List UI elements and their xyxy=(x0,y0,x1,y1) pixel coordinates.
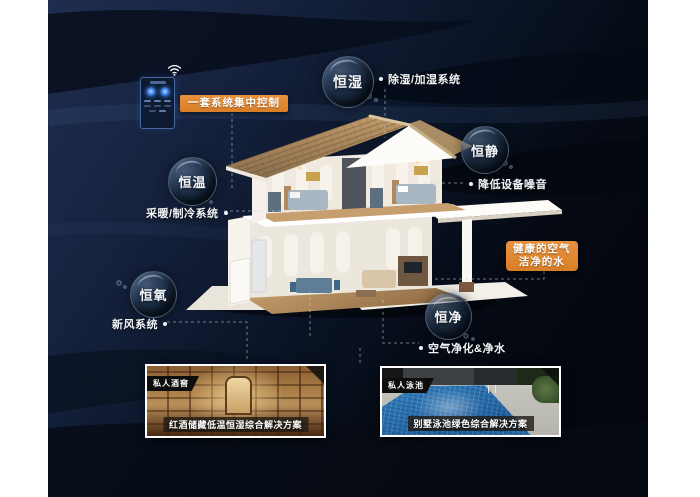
bullet-dot xyxy=(163,322,167,326)
wifi-icon xyxy=(167,63,182,76)
card-tag: 私人酒窖 xyxy=(147,376,199,391)
callout-dehumidify-system: 除湿/加湿系统 xyxy=(379,71,461,87)
bubble-label: 恒湿 xyxy=(333,72,363,92)
healthy-air-water-label: 健康的空气 洁净的水 xyxy=(506,241,578,271)
bubble-label: 恒净 xyxy=(434,307,462,326)
bubble-label: 恒氧 xyxy=(139,285,167,304)
callout-heating-cooling: 采暖/制冷系统 xyxy=(146,205,228,221)
bullet-dot xyxy=(379,77,383,81)
panel-title-bar xyxy=(150,81,166,84)
wine-cellar-card: 私人酒窖 红酒储藏低温恒湿综合解决方案 xyxy=(145,364,326,438)
pool-ladder xyxy=(488,385,496,393)
pool-card: 私人泳池 别墅泳池绿色综合解决方案 xyxy=(380,366,561,437)
callout-text: 除湿/加湿系统 xyxy=(388,71,461,87)
bullet-dot xyxy=(224,211,228,215)
central-control-label: 一套系统集中控制 xyxy=(180,95,288,112)
card-caption: 红酒储藏低温恒湿综合解决方案 xyxy=(163,417,308,432)
healthy-air-line: 健康的空气 xyxy=(513,243,571,256)
callout-text: 新风系统 xyxy=(112,316,158,332)
card-tag: 私人泳池 xyxy=(382,378,434,393)
card-caption: 别墅泳池绿色综合解决方案 xyxy=(407,416,533,431)
infographic-canvas: { "bubbles": [ {"id": "heng-shi", "label… xyxy=(0,0,700,497)
callout-text: 采暖/制冷系统 xyxy=(146,205,219,221)
clean-water-line: 洁净的水 xyxy=(513,256,571,269)
bubble-constant-oxygen: 恒氧 xyxy=(130,271,177,318)
bubble-label: 恒温 xyxy=(178,172,206,191)
callout-text: 降低设备噪音 xyxy=(478,176,547,192)
bubble-constant-humidity: 恒湿 xyxy=(322,56,374,108)
callout-purification: 空气净化&净水 xyxy=(419,340,505,356)
bullet-dot xyxy=(469,182,473,186)
wine-cabinet-center xyxy=(225,376,252,415)
smart-control-panel xyxy=(140,77,175,129)
bubble-constant-quiet: 恒静 xyxy=(461,126,509,174)
callout-text: 空气净化&净水 xyxy=(428,340,505,356)
control-knob-left xyxy=(146,87,156,97)
control-knob-right xyxy=(160,87,170,97)
bullet-dot xyxy=(419,346,423,350)
bubble-constant-temperature: 恒温 xyxy=(168,157,217,206)
callout-noise-reduction: 降低设备噪音 xyxy=(469,176,547,192)
callout-fresh-air: 新风系统 xyxy=(112,316,167,332)
bubble-label: 恒静 xyxy=(471,141,499,160)
bubble-constant-clean: 恒净 xyxy=(425,293,472,340)
